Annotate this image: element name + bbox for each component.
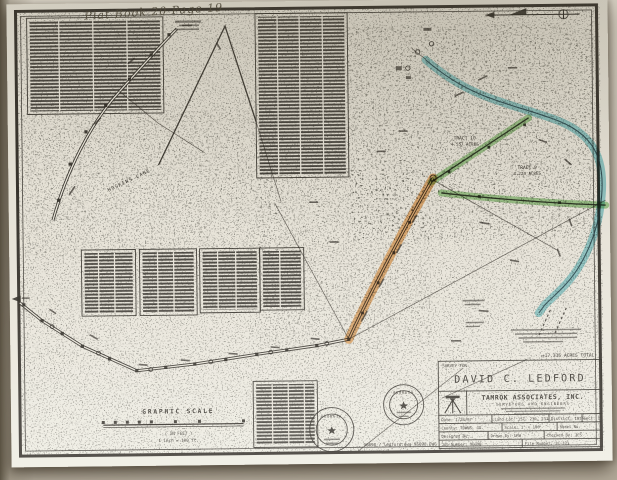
client-name: DAVID C. LEDFORD	[454, 373, 586, 385]
curve-table-a	[81, 250, 136, 317]
scale-units: ( IN FEET )	[165, 431, 193, 436]
field-date: Date: 1/28/97	[441, 417, 472, 422]
field-checked-by: Checked By: JCS	[547, 432, 583, 437]
field-sheet-no: Sheet No.	[560, 424, 581, 429]
field-drawn-by: Drawn By: LRW	[491, 433, 522, 438]
firm-name: TAMROK ASSOCIATES, INC.	[481, 393, 584, 402]
plat-paper: MAGNETIC GRAPHIC SCALE ( IN FEET ) 1 inc…	[6, 0, 612, 467]
surveyor-seal-left: GEORGIA	[309, 407, 354, 452]
lot-table-bottom	[253, 381, 318, 448]
surveyor-seal-right: GEORGIA	[383, 384, 424, 425]
field-county: County: TOWNS, GA.	[441, 425, 483, 430]
curve-table-d	[260, 248, 305, 311]
file-note: 96098 / ledford.dwg 96098.DWG	[363, 441, 437, 447]
firm-subtitle: SURVEYORS AND ENGINEERS	[496, 402, 570, 407]
field-file-number: File Number: 2C-371	[525, 441, 570, 447]
field-scale: Scale: 1" = 100'	[505, 424, 543, 429]
plat-drawing: MAGNETIC GRAPHIC SCALE ( IN FEET ) 1 inc…	[6, 0, 612, 467]
field-sect: Sect. 1	[584, 415, 601, 420]
acres-total-label: ±17.336 ACRES TOTAL	[542, 352, 595, 359]
field-land-lot: Land Lot: 157, 230, 231	[494, 416, 549, 422]
magnetic-label: MAGNETIC	[493, 4, 515, 8]
photo-of-survey-plat: MAGNETIC GRAPHIC SCALE ( IN FEET ) 1 inc…	[0, 0, 617, 480]
survey-for-label: SURVEY FOR:	[442, 363, 469, 368]
tract-10-acres: 4.557 ACRES	[451, 141, 479, 146]
field-designed-by: Designed By:	[442, 433, 470, 438]
field-district: District: 18th	[551, 416, 584, 421]
line-table-top-center	[255, 13, 349, 178]
field-job-number: Job Number: 96098	[442, 442, 483, 447]
curve-table-b	[139, 249, 197, 316]
curve-table-c	[199, 248, 260, 313]
seal-left-text: GEORGIA	[321, 414, 342, 418]
scale-ratio: 1 inch = 100 ft.	[158, 438, 198, 443]
tract-9-acres: 4.224 ACRES	[513, 171, 541, 176]
graphic-scale-title: GRAPHIC SCALE	[142, 408, 214, 416]
seal-right-text: GEORGIA	[393, 391, 414, 395]
